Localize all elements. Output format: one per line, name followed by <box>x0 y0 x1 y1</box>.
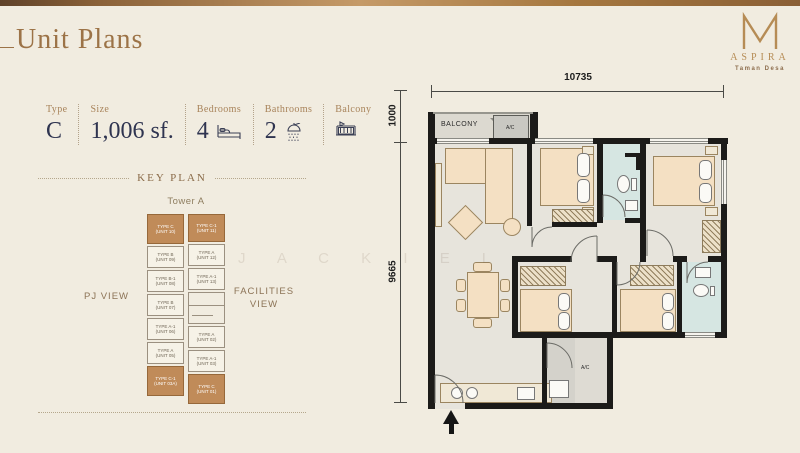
top-accent-bar <box>0 0 800 6</box>
info-item-bathrooms: Bathrooms 2 <box>253 104 324 145</box>
size-value: 1,006 sf. <box>90 118 173 145</box>
tower-unit: TYPE A(UNIT 05) <box>147 342 184 364</box>
floor-plan: 10735 1000 9665 BALCONY A/C A/C <box>385 60 797 452</box>
bathrooms-value: 2 <box>265 118 277 145</box>
facilities-view-label: FACILITIES VIEW <box>232 286 296 312</box>
tower-diagram: TYPE C(UNIT 10) TYPE B(UNIT 09) TYPE B-1… <box>147 214 225 404</box>
size-label: Size <box>90 104 173 115</box>
tower-unit: TYPE A-1(UNIT 03) <box>188 350 225 372</box>
door-swings-layer <box>385 60 797 452</box>
keyplan-title: KEY PLAN <box>137 172 207 184</box>
tower-unit: TYPE C-1(UNIT 03A) <box>147 366 184 396</box>
tower-unit: TYPE A-1(UNIT 13) <box>188 268 225 290</box>
balcony-icon <box>335 119 357 136</box>
tower-unit: TYPE A(UNIT 12) <box>188 244 225 266</box>
entry-arrow <box>443 410 459 434</box>
info-item-size: Size 1,006 sf. <box>78 104 184 145</box>
tower-label: Tower A <box>146 196 226 207</box>
type-label: Type <box>46 104 67 115</box>
bedrooms-value: 4 <box>197 118 209 145</box>
divider <box>38 178 129 179</box>
shower-icon <box>284 123 304 141</box>
type-value: C <box>46 118 62 145</box>
tower-right-column: TYPE C-1(UNIT 11) TYPE A(UNIT 12) TYPE A… <box>188 214 225 404</box>
balcony-label: Balcony <box>335 104 371 115</box>
pj-view-label: PJ VIEW <box>84 291 129 302</box>
divider <box>38 412 306 413</box>
page-title: Unit Plans <box>16 24 143 56</box>
tower-left-column: TYPE C(UNIT 10) TYPE B(UNIT 09) TYPE B-1… <box>147 214 184 404</box>
tower-unit: TYPE A-1(UNIT 06) <box>147 318 184 340</box>
bed-icon <box>216 123 242 141</box>
bathrooms-label: Bathrooms <box>265 104 313 115</box>
tower-unit: TYPE C(UNIT 10) <box>147 214 184 244</box>
divider <box>215 178 306 179</box>
title-dash <box>0 47 14 48</box>
tower-unit: TYPE B-1(UNIT 08) <box>147 270 184 292</box>
info-item-balcony: Balcony <box>323 104 382 145</box>
tower-core <box>188 292 225 324</box>
tower-unit: TYPE B(UNIT 07) <box>147 294 184 316</box>
tower-unit: TYPE C-1(UNIT 11) <box>188 214 225 242</box>
info-item-type: Type C <box>46 104 78 145</box>
keyplan-header: KEY PLAN <box>38 172 306 184</box>
tower-unit: TYPE A(UNIT 02) <box>188 326 225 348</box>
m-monogram-icon <box>728 12 792 50</box>
bedrooms-label: Bedrooms <box>197 104 242 115</box>
tower-unit: TYPE C(UNIT 01) <box>188 374 225 404</box>
tower-unit: TYPE B(UNIT 09) <box>147 246 184 268</box>
info-item-bedrooms: Bedrooms 4 <box>185 104 253 145</box>
unit-info-row: Type C Size 1,006 sf. Bedrooms 4 Bathroo… <box>46 104 382 145</box>
